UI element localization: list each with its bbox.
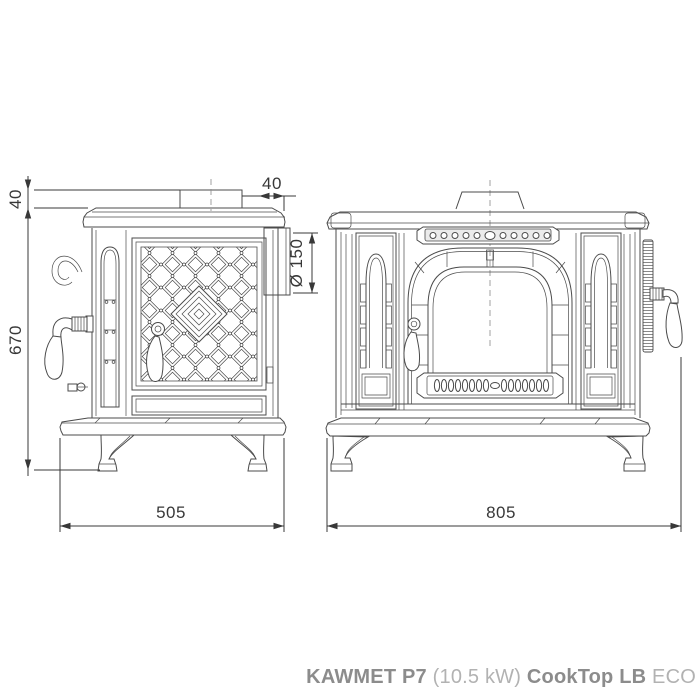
dimension-flue-setback-40: 40 (242, 174, 296, 211)
dim-label-height: 670 (6, 325, 25, 355)
dim-label-width: 805 (486, 503, 516, 522)
dimension-flue-diameter-150: Ø 150 (287, 233, 318, 293)
side-bottom-panel (132, 396, 266, 415)
side-front-arch-window (101, 247, 119, 407)
caption-brand: KAWMET P7 (306, 666, 427, 688)
side-top-plate (83, 208, 285, 227)
front-left-panel (356, 233, 396, 409)
dim-label-depth: 505 (156, 503, 186, 522)
caption-variant: ECO (652, 666, 696, 688)
front-base-plate (326, 418, 650, 436)
bottom-air-grill (417, 373, 563, 398)
side-ash-knob (68, 383, 88, 391)
front-door-latch (404, 318, 420, 371)
stove-dimension-drawing: 40 670 40 Ø 150 505 805 (0, 0, 700, 700)
dim-label-flue-setback: 40 (262, 174, 282, 193)
side-legs (98, 435, 267, 471)
dim-label-flue-diameter: Ø 150 (287, 239, 306, 288)
side-base-plate (60, 418, 286, 435)
front-top-plate (327, 212, 649, 229)
dim-label-flue-height: 40 (6, 189, 25, 209)
side-view (45, 179, 290, 471)
caption-power: (10.5 kW) (433, 666, 521, 688)
technical-drawing-page: 40 670 40 Ø 150 505 805 KAWMET P7 (10.5 … (0, 0, 700, 700)
front-legs (331, 436, 645, 471)
side-flue-pipe (180, 179, 242, 211)
front-door-handle (643, 240, 682, 352)
side-door-handle (45, 256, 93, 379)
side-lattice-door (132, 238, 266, 390)
caption-model: CookTop LB (527, 666, 646, 688)
top-air-vent-strip (417, 227, 559, 244)
product-caption: KAWMET P7 (10.5 kW) CookTop LB ECO (306, 666, 696, 689)
front-view (326, 180, 682, 471)
front-right-panel (581, 233, 621, 409)
